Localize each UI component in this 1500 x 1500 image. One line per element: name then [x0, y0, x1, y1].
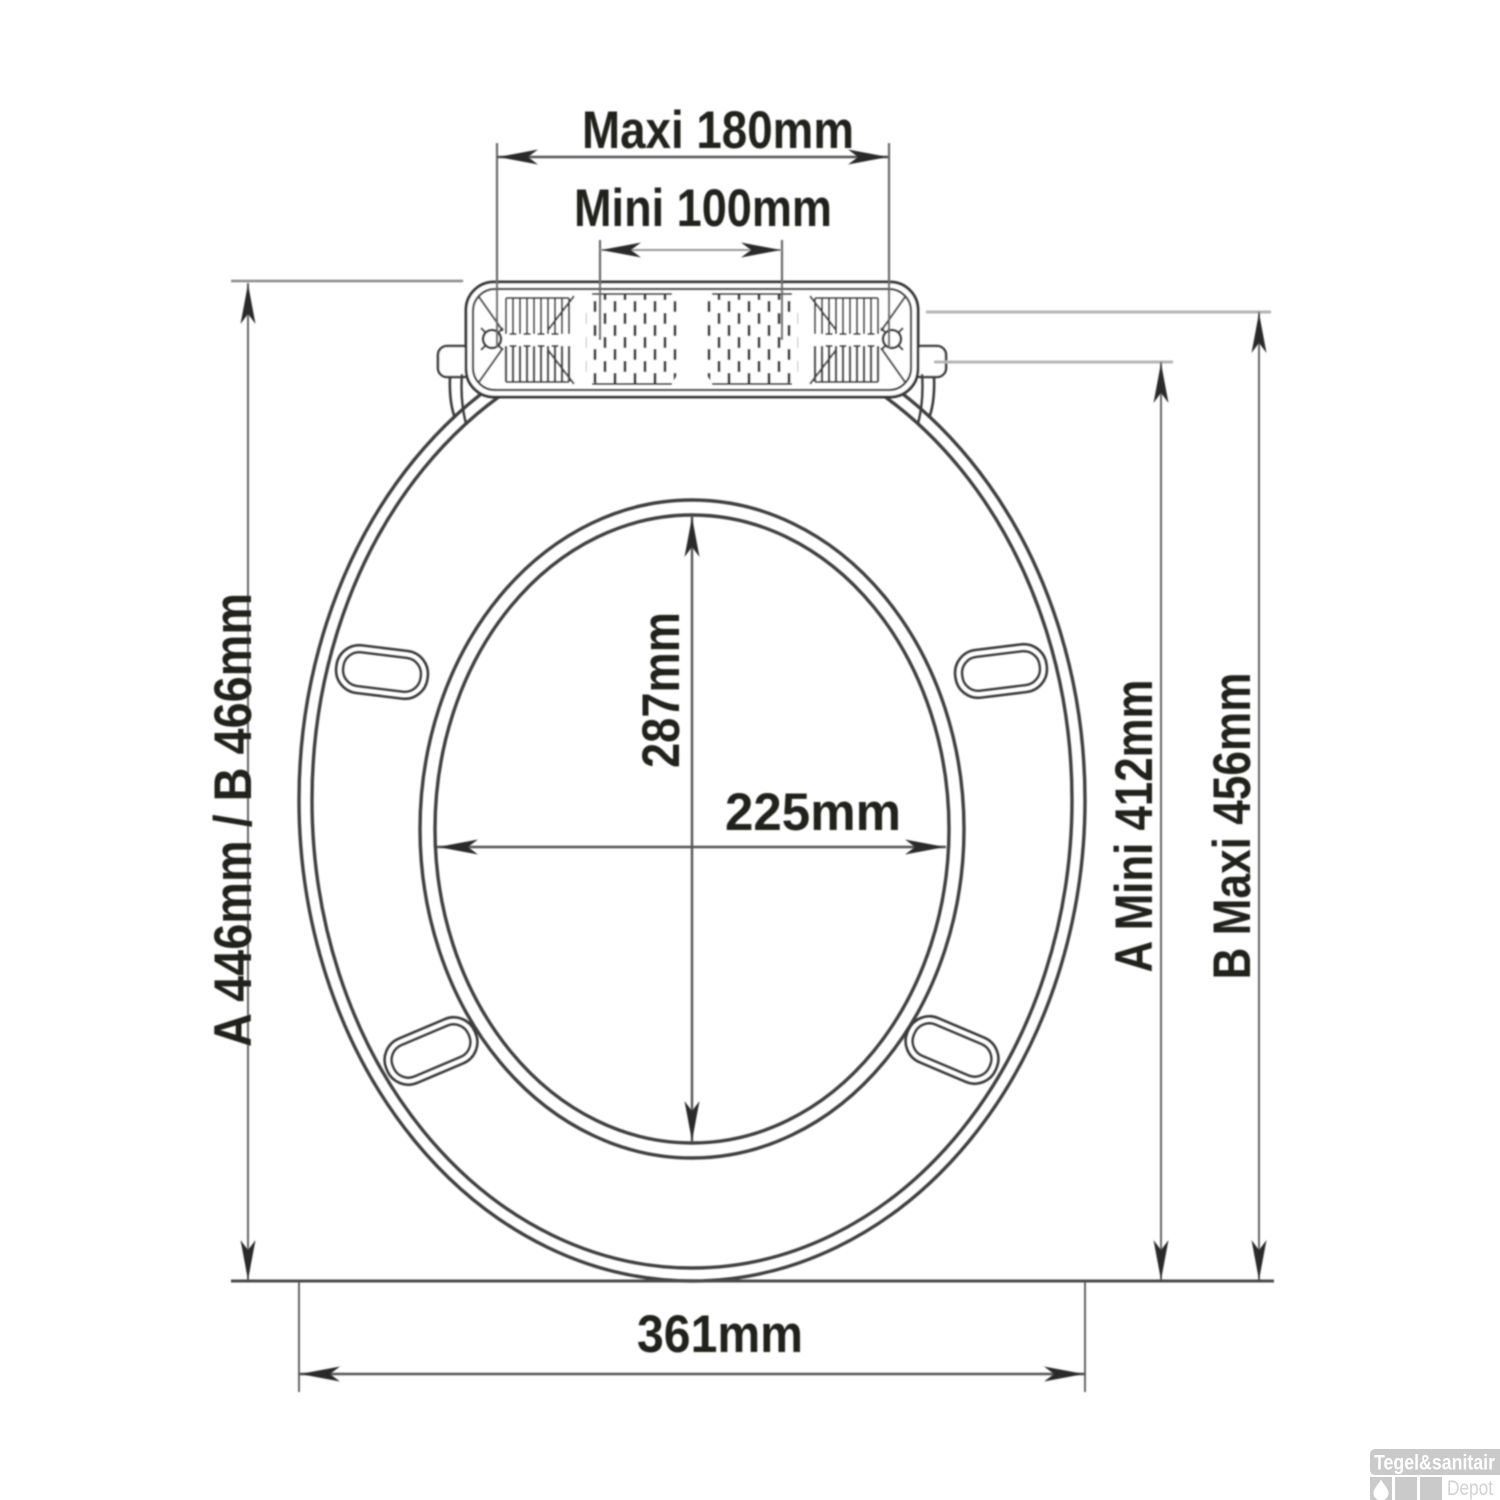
svg-text:Depot: Depot: [1447, 1477, 1493, 1500]
svg-text:225mm: 225mm: [725, 783, 901, 842]
svg-text:A 446mm / B 466mm: A 446mm / B 466mm: [204, 593, 263, 1047]
svg-text:A Mini 412mm: A Mini 412mm: [1105, 680, 1164, 973]
svg-text:B Maxi 456mm: B Maxi 456mm: [1203, 673, 1262, 980]
svg-text:287mm: 287mm: [632, 612, 691, 768]
svg-text:Mini 100mm: Mini 100mm: [574, 179, 832, 238]
svg-text:361mm: 361mm: [637, 1305, 803, 1364]
svg-text:Tegel&sanitair: Tegel&sanitair: [1374, 1452, 1495, 1475]
svg-text:Maxi 180mm: Maxi 180mm: [582, 101, 854, 160]
